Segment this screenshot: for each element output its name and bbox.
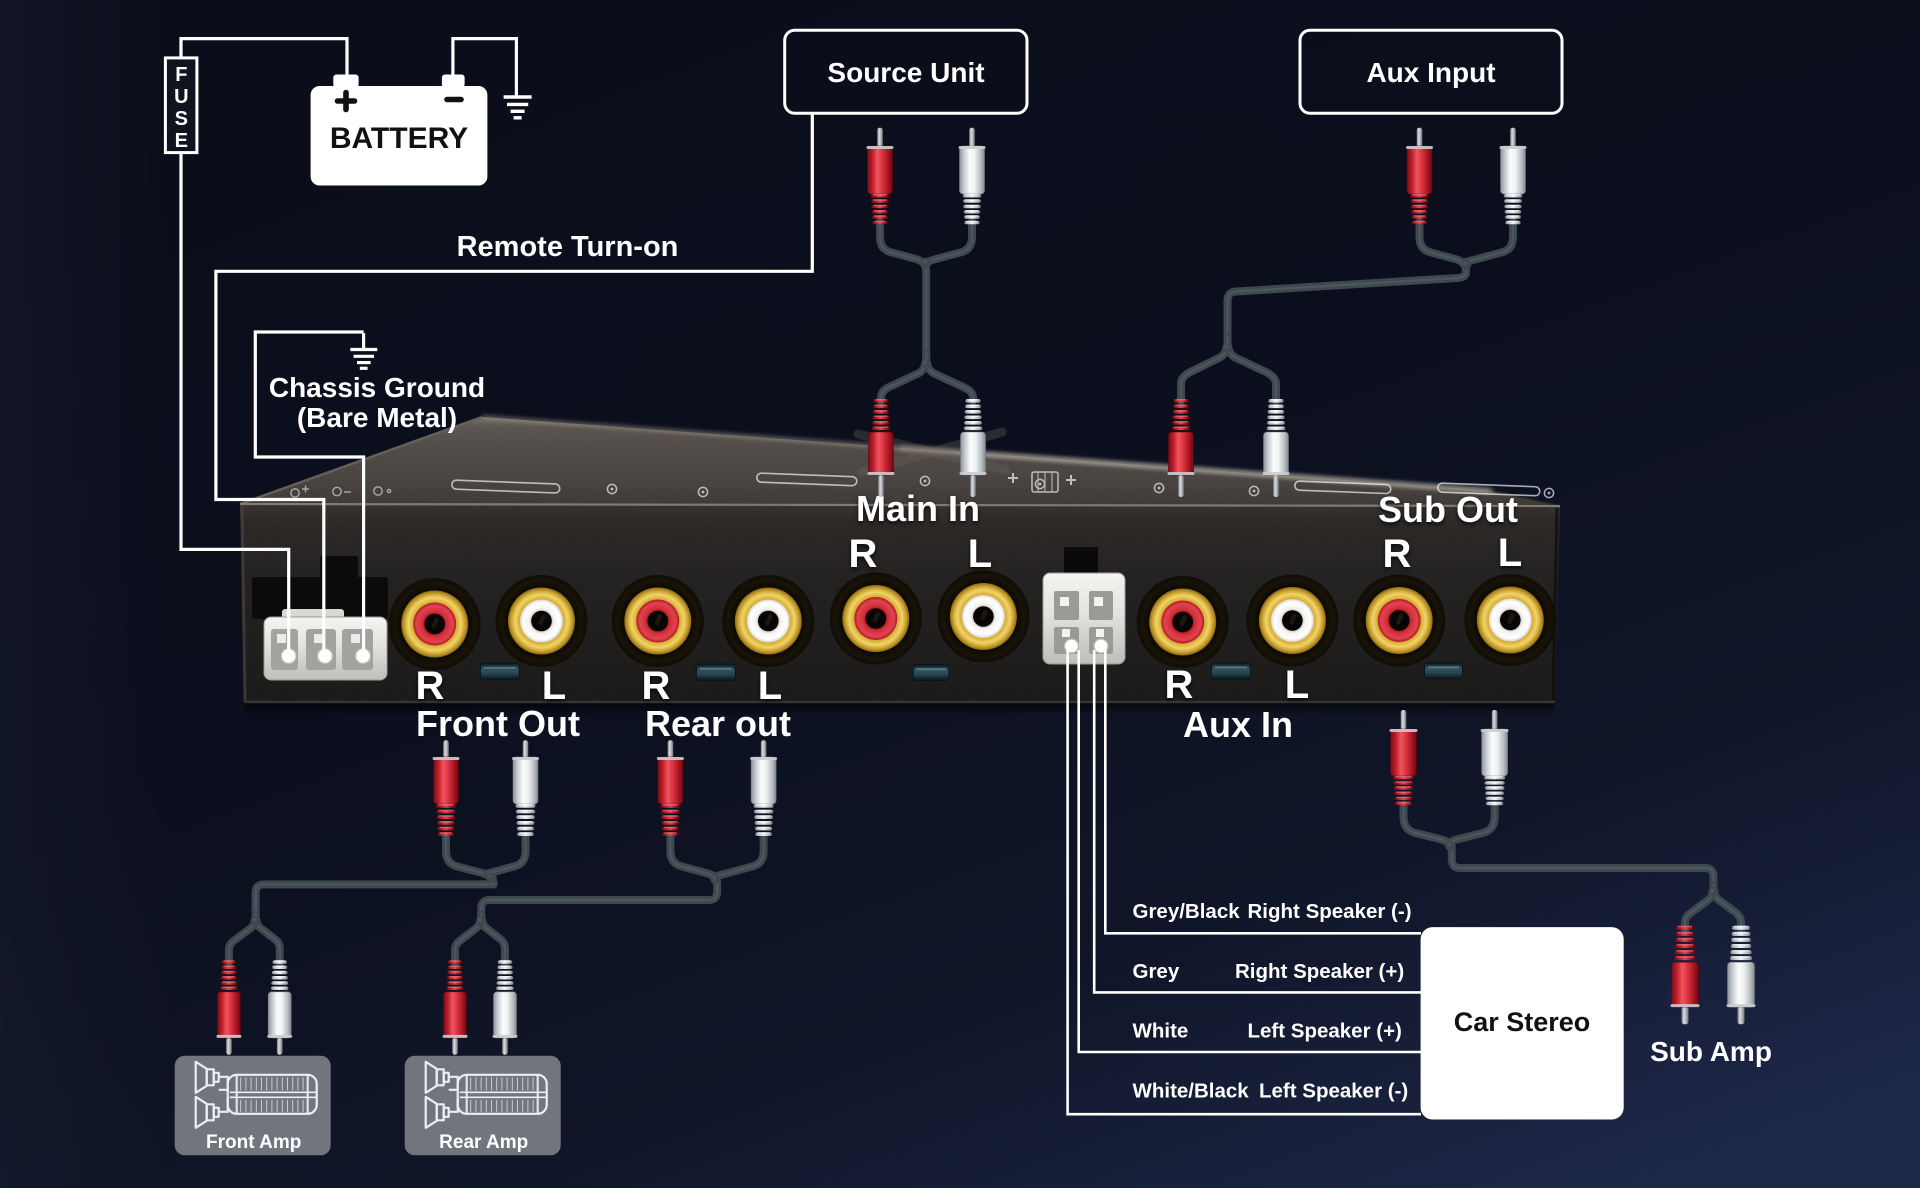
svg-text:R: R: [849, 532, 878, 576]
svg-text:BATTERY: BATTERY: [330, 122, 468, 155]
svg-text:Remote Turn-on: Remote Turn-on: [457, 231, 679, 263]
svg-text:Car Stereo: Car Stereo: [1454, 1007, 1591, 1037]
svg-text:L: L: [1498, 531, 1522, 575]
svg-text:Front Out: Front Out: [416, 703, 580, 744]
svg-text:Sub Out: Sub Out: [1378, 489, 1518, 530]
svg-text:(Bare Metal): (Bare Metal): [297, 402, 457, 433]
svg-text:Aux In: Aux In: [1183, 704, 1293, 745]
svg-text:Main In: Main In: [856, 488, 980, 529]
svg-text:Front Amp: Front Amp: [206, 1132, 301, 1153]
svg-text:Chassis Ground: Chassis Ground: [269, 372, 485, 403]
svg-text:Grey/Black: Grey/Black: [1133, 900, 1241, 923]
svg-text:Grey: Grey: [1133, 960, 1180, 983]
svg-text:U: U: [174, 86, 188, 108]
svg-text:Left Speaker (-): Left Speaker (-): [1259, 1080, 1408, 1103]
svg-text:R: R: [1165, 663, 1194, 707]
svg-text:R: R: [642, 664, 671, 708]
svg-text:Left Speaker (+): Left Speaker (+): [1248, 1020, 1402, 1043]
svg-text:Rear Amp: Rear Amp: [439, 1132, 528, 1153]
svg-text:E: E: [175, 130, 188, 152]
svg-text:F: F: [175, 64, 187, 86]
svg-text:Source Unit: Source Unit: [827, 57, 984, 88]
svg-text:L: L: [758, 664, 782, 708]
svg-text:L: L: [968, 532, 992, 576]
svg-text:White/Black: White/Black: [1133, 1080, 1250, 1103]
svg-text:R: R: [1383, 532, 1412, 576]
svg-text:Right Speaker (+): Right Speaker (+): [1235, 960, 1404, 983]
svg-text:S: S: [175, 108, 188, 130]
svg-text:Aux Input: Aux Input: [1366, 57, 1495, 88]
svg-text:Rear out: Rear out: [645, 703, 791, 744]
svg-text:White: White: [1133, 1020, 1189, 1043]
svg-text:Right Speaker (-): Right Speaker (-): [1248, 900, 1412, 923]
svg-text:L: L: [1285, 663, 1309, 707]
svg-text:L: L: [542, 664, 566, 708]
svg-text:R: R: [416, 664, 445, 708]
svg-text:Sub Amp: Sub Amp: [1650, 1036, 1772, 1067]
